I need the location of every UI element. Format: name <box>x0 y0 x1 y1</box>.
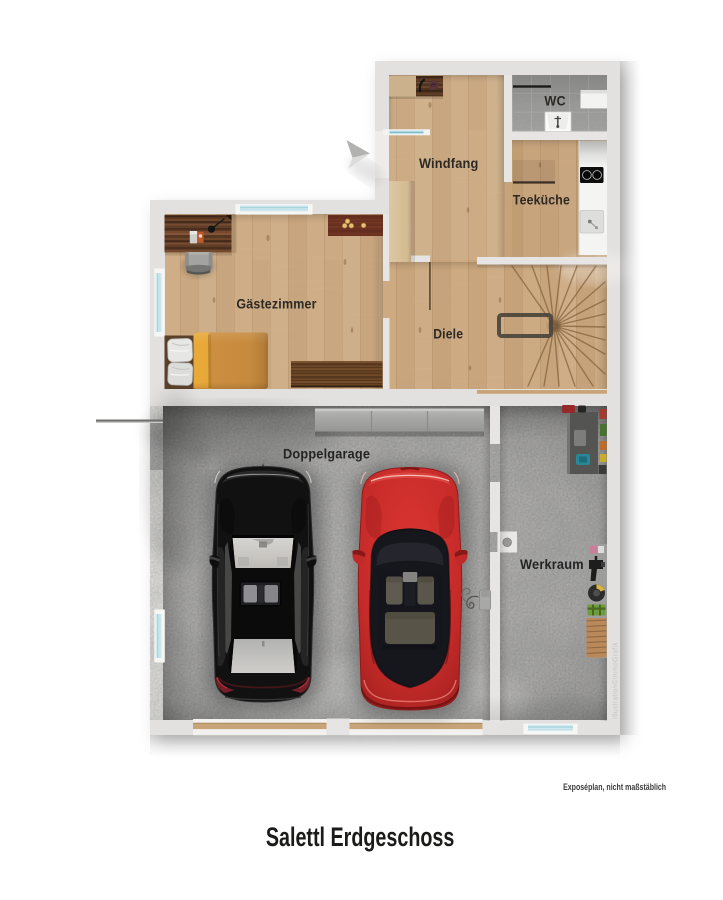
svg-text:Teeküche: Teeküche <box>513 192 570 207</box>
svg-text:Gästezimmer: Gästezimmer <box>236 297 317 312</box>
svg-text:WC: WC <box>544 93 566 109</box>
svg-text:Exposéplan, nicht maßstäblich: Exposéplan, nicht maßstäblich <box>563 782 666 792</box>
svg-text:Windfang: Windfang <box>419 156 479 171</box>
svg-text:Doppelgarage: Doppelgarage <box>283 447 370 462</box>
svg-text:Illustration©immoGrafik: Illustration©immoGrafik <box>612 642 620 719</box>
svg-text:Salettl Erdgeschoss: Salettl Erdgeschoss <box>266 822 455 852</box>
svg-text:Diele: Diele <box>433 326 463 341</box>
svg-text:Werkraum: Werkraum <box>520 557 584 572</box>
